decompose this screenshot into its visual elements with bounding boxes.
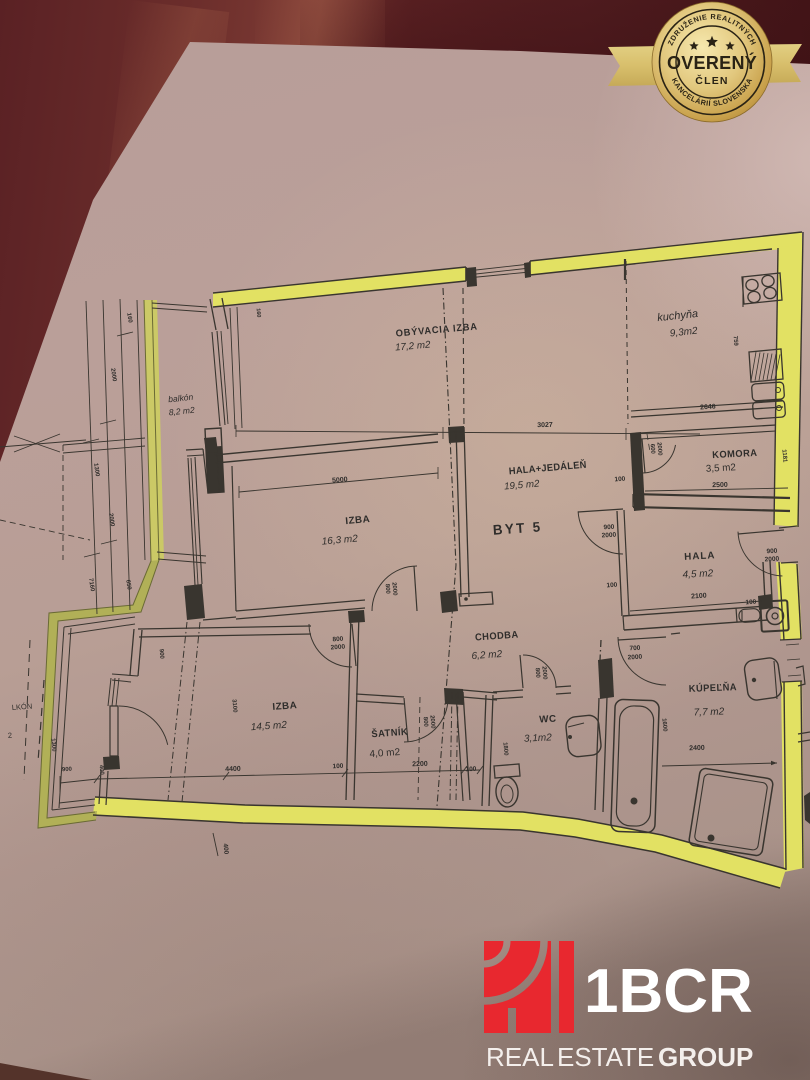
svg-text:1BCR: 1BCR: [584, 957, 753, 1026]
svg-text:REAL: REAL: [486, 1042, 554, 1072]
svg-text:GROUP: GROUP: [658, 1042, 753, 1072]
svg-text:ESTATE: ESTATE: [557, 1042, 654, 1072]
